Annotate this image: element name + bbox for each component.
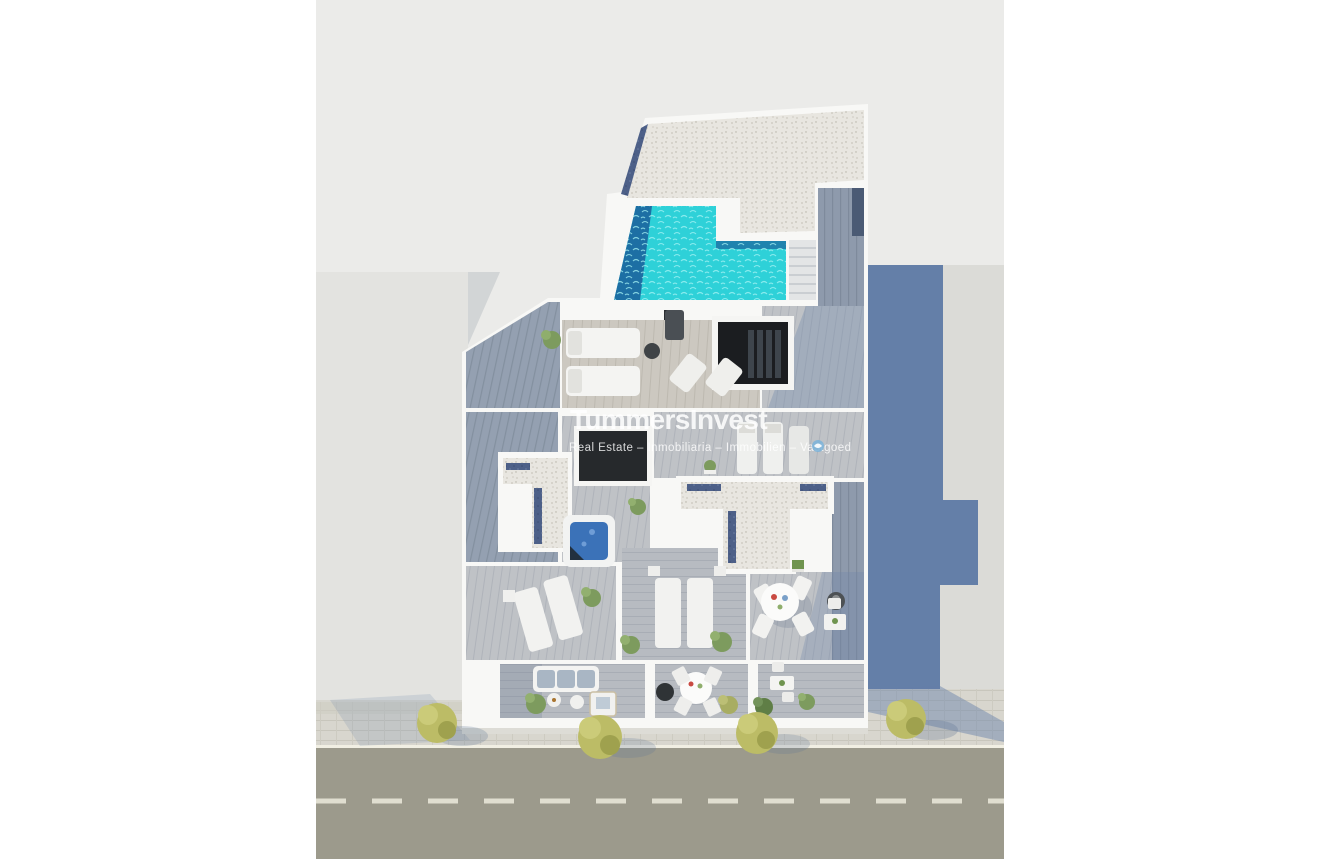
skylight-strip bbox=[728, 511, 736, 563]
chair bbox=[782, 692, 794, 702]
front-parapet-shade bbox=[462, 728, 868, 734]
skylight-strip bbox=[687, 484, 721, 491]
skylight-glass bbox=[579, 431, 647, 481]
gravel-roof-left bbox=[498, 452, 572, 552]
right-neighbor-building bbox=[868, 265, 1004, 742]
sun-lounger bbox=[655, 578, 681, 648]
gravel-bar bbox=[503, 458, 568, 484]
street-edge-line bbox=[316, 745, 1004, 748]
round-table bbox=[761, 583, 799, 621]
chair bbox=[828, 598, 841, 609]
sun-lounger bbox=[687, 578, 713, 648]
left-building-roof bbox=[316, 272, 468, 702]
scene: TummersInvest Real Estate – Inmobiliaria… bbox=[0, 0, 1320, 859]
street bbox=[316, 745, 1004, 859]
lounger-pillow bbox=[568, 331, 582, 355]
pool-deck-stairs bbox=[789, 240, 816, 300]
plant-mid bbox=[704, 460, 716, 474]
watermark-subtitle: Real Estate – Inmobiliaria – Immobilien … bbox=[569, 442, 851, 454]
skylight-strip bbox=[534, 488, 542, 544]
chair bbox=[772, 662, 784, 672]
balcony-right-floor bbox=[758, 664, 864, 718]
left-margin bbox=[0, 0, 316, 859]
side-table bbox=[503, 590, 515, 602]
skylight-strip bbox=[800, 484, 826, 491]
skylight-strip bbox=[506, 463, 530, 470]
side-table bbox=[714, 566, 726, 576]
grill bbox=[656, 683, 674, 701]
side-table bbox=[648, 566, 660, 576]
swirl-bird-icon bbox=[812, 440, 824, 452]
render-canvas: TummersInvest Real Estate – Inmobiliaria… bbox=[0, 0, 1320, 859]
right-margin bbox=[1004, 0, 1320, 859]
stairs-base bbox=[789, 240, 816, 300]
watermark-title: TummersInvest bbox=[570, 404, 767, 435]
jacuzzi bbox=[563, 515, 615, 567]
corridor-wall-shade bbox=[852, 188, 864, 236]
lounger-pillow bbox=[568, 369, 582, 393]
coffee-table bbox=[570, 695, 584, 709]
dark-lounge-chair bbox=[665, 310, 684, 340]
plant-box bbox=[792, 560, 804, 572]
side-table-dark bbox=[644, 343, 660, 359]
dark-skylight bbox=[574, 426, 652, 486]
